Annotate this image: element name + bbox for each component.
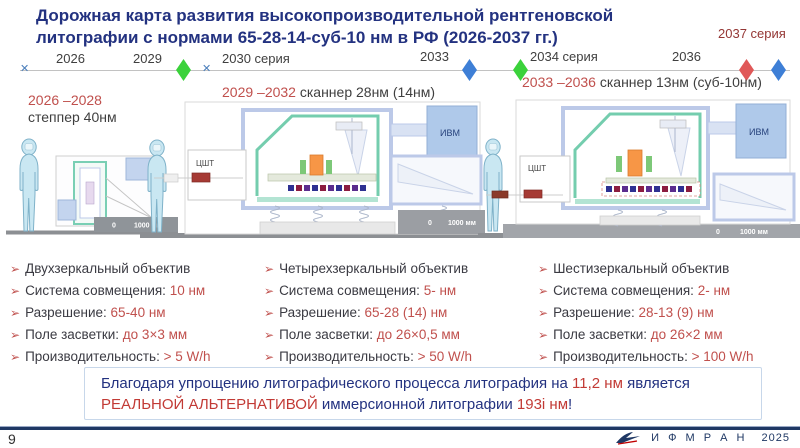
spec-item: ➢Система совмещения: 5- нм — [264, 280, 522, 302]
banner-highlight: РЕАЛЬНОЙ АЛЬТЕРНАТИВОЙ — [101, 396, 318, 413]
banner-highlight: 11,2 нм — [572, 375, 623, 392]
arrow-bullet-icon: ➢ — [264, 306, 274, 320]
spec-value: > 50 W/h — [418, 349, 472, 364]
title-line-1: Дорожная карта развития высокопроизводит… — [36, 5, 613, 27]
scale-label: 1000 мм — [448, 220, 476, 227]
banner-text: Благодаря упрощению литографического про… — [101, 375, 572, 392]
spec-item: ➢Поле засветки: до 26×2 мм — [538, 324, 796, 346]
stage-3-name: сканнер 13нм (суб-10нм) — [596, 74, 762, 90]
arrow-bullet-icon: ➢ — [10, 284, 20, 298]
title-line-2: литографии с нормами 65-28-14-суб-10 нм … — [36, 27, 613, 49]
milestone-diamond-green — [176, 59, 191, 81]
arrow-bullet-icon: ➢ — [538, 350, 548, 364]
slide-roadmap: Дорожная карта развития высокопроизводит… — [0, 0, 800, 448]
footer-year: 2025 — [762, 432, 790, 444]
spec-column-3: ➢Шестизеркальный объектив ➢Система совме… — [538, 258, 796, 368]
spec-label: Производительность: — [25, 349, 160, 364]
footer-divider — [0, 426, 800, 430]
banner-text: является — [623, 375, 690, 392]
spec-label: Производительность: — [279, 349, 414, 364]
spec-label: Производительность: — [553, 349, 688, 364]
spec-label: Четырехзеркальный объектив — [279, 261, 468, 276]
timeline-label-2030: 2030 серия — [222, 51, 290, 66]
tsht-box-label: ЦШТ — [196, 159, 214, 168]
stage-1-name: степпер 40нм — [28, 109, 117, 125]
spec-label: Система совмещения: — [25, 283, 166, 298]
milestone-diamond-blue — [771, 59, 786, 81]
spec-value: до 26×0,5 мм — [377, 327, 460, 342]
spec-item: ➢Разрешение: 65-28 (14) нм — [264, 302, 522, 324]
spec-value: 28-13 (9) нм — [639, 305, 714, 320]
stage-3-header: 2033 –2036 сканнер 13нм (суб-10нм) — [522, 74, 762, 90]
page-title: Дорожная карта развития высокопроизводит… — [36, 5, 613, 49]
footer-org-name: И Ф М Р А Н — [651, 432, 747, 444]
timeline-label-2037: 2037 серия — [718, 26, 786, 41]
arrow-bullet-icon: ➢ — [538, 262, 548, 276]
banner-highlight: 193i нм — [517, 396, 568, 413]
footer-brand: И Ф М Р А Н 2025 — [615, 431, 790, 445]
arrow-bullet-icon: ➢ — [10, 350, 20, 364]
operator-figure — [148, 140, 166, 232]
spec-item: ➢Поле засветки: до 3×3 мм — [10, 324, 268, 346]
spec-label: Поле засветки: — [553, 327, 647, 342]
spec-item: ➢Двухзеркальный объектив — [10, 258, 268, 280]
scale-zero-label: 0 — [716, 229, 720, 236]
milestone-diamond-blue — [462, 59, 477, 81]
spec-item: ➢Система совмещения: 10 нм — [10, 280, 268, 302]
arrow-bullet-icon: ➢ — [538, 306, 548, 320]
stage-1-period: 2026 –2028 — [28, 92, 117, 108]
arrow-bullet-icon: ➢ — [10, 328, 20, 342]
spec-item: ➢Разрешение: 28-13 (9) нм — [538, 302, 796, 324]
spec-value: до 3×3 мм — [123, 327, 187, 342]
timeline-label-2036: 2036 — [672, 49, 701, 64]
stage-1-header: 2026 –2028 степпер 40нм — [28, 92, 117, 125]
timeline-label-2033: 2033 — [420, 49, 449, 64]
spec-item: ➢Производительность: > 100 W/h — [538, 346, 796, 368]
tsht-box-label: ЦШТ — [528, 164, 546, 173]
spec-value: > 100 W/h — [692, 349, 754, 364]
scale-label: 1000 мм — [740, 229, 768, 236]
ifm-ran-logo — [615, 431, 641, 445]
spec-value: > 5 W/h — [164, 349, 211, 364]
spec-item: ➢Четырехзеркальный объектив — [264, 258, 522, 280]
spec-label: Система совмещения: — [553, 283, 694, 298]
scale-zero-label: 0 — [428, 220, 432, 227]
spec-value: 10 нм — [170, 283, 206, 298]
spec-column-2: ➢Четырехзеркальный объектив ➢Система сов… — [264, 258, 522, 368]
banner-text: ! — [568, 396, 572, 413]
timeline-label-2026: 2026 — [56, 51, 85, 66]
arrow-bullet-icon: ➢ — [10, 262, 20, 276]
page-number: 9 — [8, 431, 16, 447]
spec-label: Поле засветки: — [25, 327, 119, 342]
operator-figure — [20, 139, 38, 231]
spec-label: Разрешение: — [553, 305, 635, 320]
scale-zero-label: 0 — [112, 223, 116, 230]
ivm-box-label: ИВМ — [749, 127, 769, 137]
arrow-bullet-icon: ➢ — [264, 328, 274, 342]
spec-item: ➢Шестизеркальный объектив — [538, 258, 796, 280]
spec-label: Разрешение: — [25, 305, 107, 320]
spec-value: 65-40 нм — [111, 305, 166, 320]
timeline-x-marker: ✕ — [20, 62, 29, 75]
arrow-bullet-icon: ➢ — [264, 262, 274, 276]
spec-label: Система совмещения: — [279, 283, 420, 298]
ivm-box-label: ИВМ — [440, 128, 460, 138]
stage-3-period: 2033 –2036 — [522, 74, 596, 90]
timeline-x-marker: ✕ — [202, 62, 211, 75]
arrow-bullet-icon: ➢ — [538, 328, 548, 342]
arrow-bullet-icon: ➢ — [264, 350, 274, 364]
machine-3-illustration: ИВМ ЦШТ 0 1000 мм — [478, 98, 800, 240]
chip-row — [606, 186, 692, 192]
spec-label: Шестизеркальный объектив — [553, 261, 729, 276]
arrow-bullet-icon: ➢ — [264, 284, 274, 298]
timeline-axis — [20, 70, 790, 71]
machine-2-illustration: ИВМ ЦШТ 0 1000 мм — [140, 98, 485, 240]
spec-value: 65-28 (14) нм — [365, 305, 448, 320]
spec-item: ➢Система совмещения: 2- нм — [538, 280, 796, 302]
spec-item: ➢Производительность: > 50 W/h — [264, 346, 522, 368]
spec-item: ➢Разрешение: 65-40 нм — [10, 302, 268, 324]
spec-item: ➢Производительность: > 5 W/h — [10, 346, 268, 368]
spec-column-1: ➢Двухзеркальный объектив ➢Система совмещ… — [10, 258, 268, 368]
banner-line-1: Благодаря упрощению литографического про… — [101, 373, 749, 394]
spec-value: 2- нм — [698, 283, 731, 298]
spec-item: ➢Поле засветки: до 26×0,5 мм — [264, 324, 522, 346]
banner-text: иммерсионной литографии — [318, 396, 517, 413]
spec-label: Двухзеркальный объектив — [25, 261, 190, 276]
conclusion-banner: Благодаря упрощению литографического про… — [84, 367, 762, 420]
spec-value: 5- нм — [424, 283, 457, 298]
banner-line-2: РЕАЛЬНОЙ АЛЬТЕРНАТИВОЙ иммерсионной лито… — [101, 394, 749, 415]
spec-label: Разрешение: — [279, 305, 361, 320]
spec-label: Поле засветки: — [279, 327, 373, 342]
arrow-bullet-icon: ➢ — [10, 306, 20, 320]
timeline-label-2034: 2034 серия — [530, 49, 598, 64]
timeline-label-2029: 2029 — [133, 51, 162, 66]
spec-value: до 26×2 мм — [651, 327, 723, 342]
operator-figure — [484, 139, 502, 231]
arrow-bullet-icon: ➢ — [538, 284, 548, 298]
